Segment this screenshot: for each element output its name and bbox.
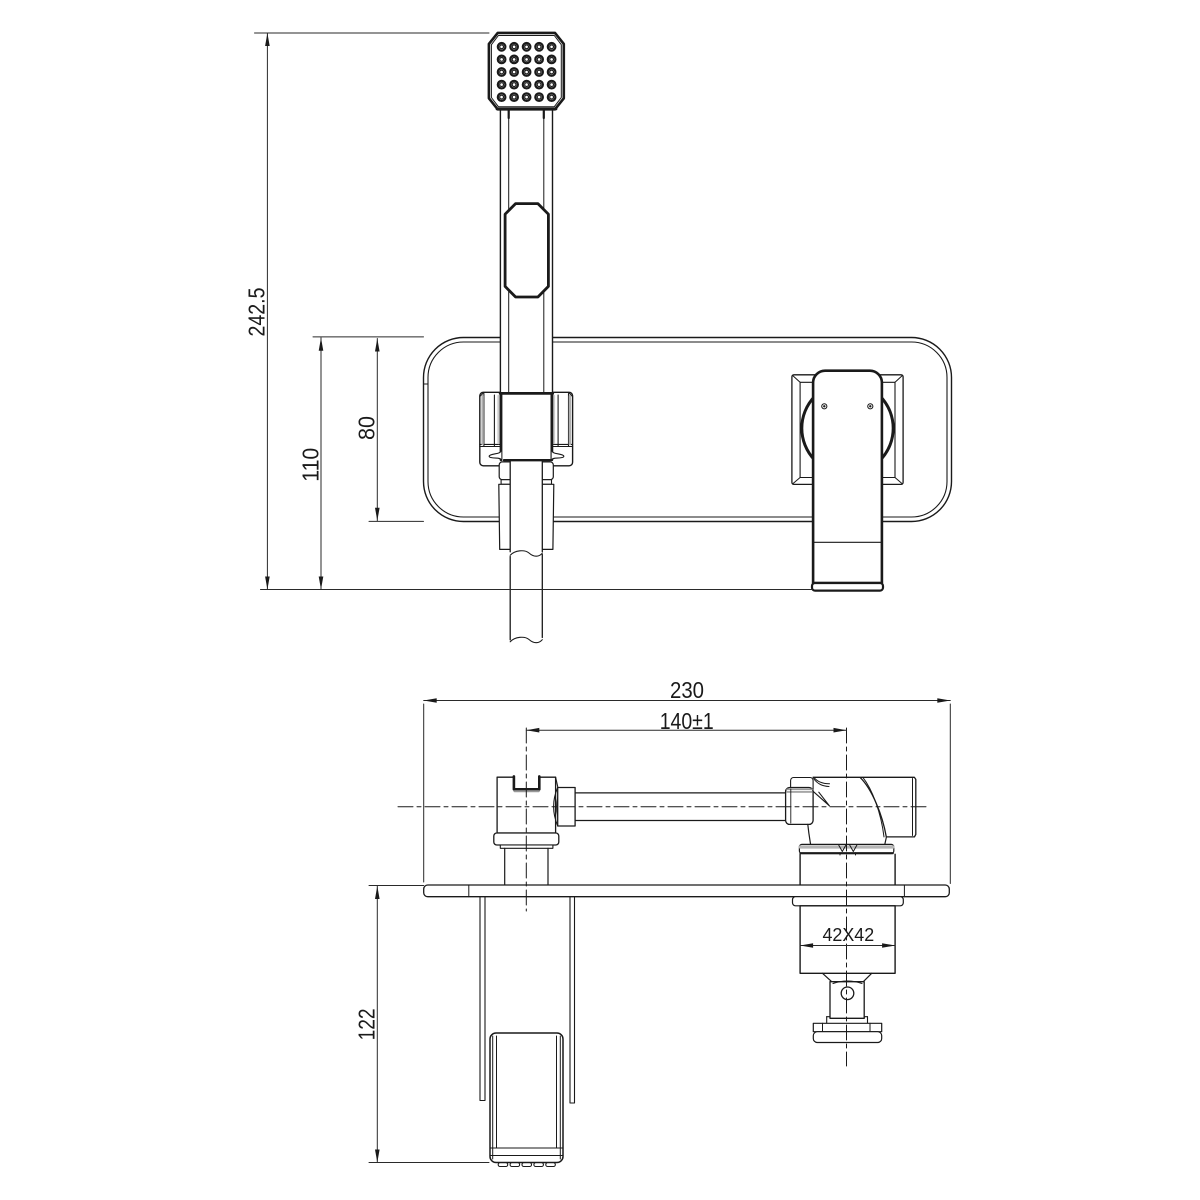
svg-text:80: 80 xyxy=(353,416,379,440)
svg-text:242.5: 242.5 xyxy=(244,288,270,337)
svg-text:122: 122 xyxy=(354,1008,380,1040)
svg-text:230: 230 xyxy=(670,677,704,703)
svg-text:110: 110 xyxy=(297,448,323,482)
svg-text:140±1: 140±1 xyxy=(660,708,714,734)
svg-text:42X42: 42X42 xyxy=(822,924,874,945)
